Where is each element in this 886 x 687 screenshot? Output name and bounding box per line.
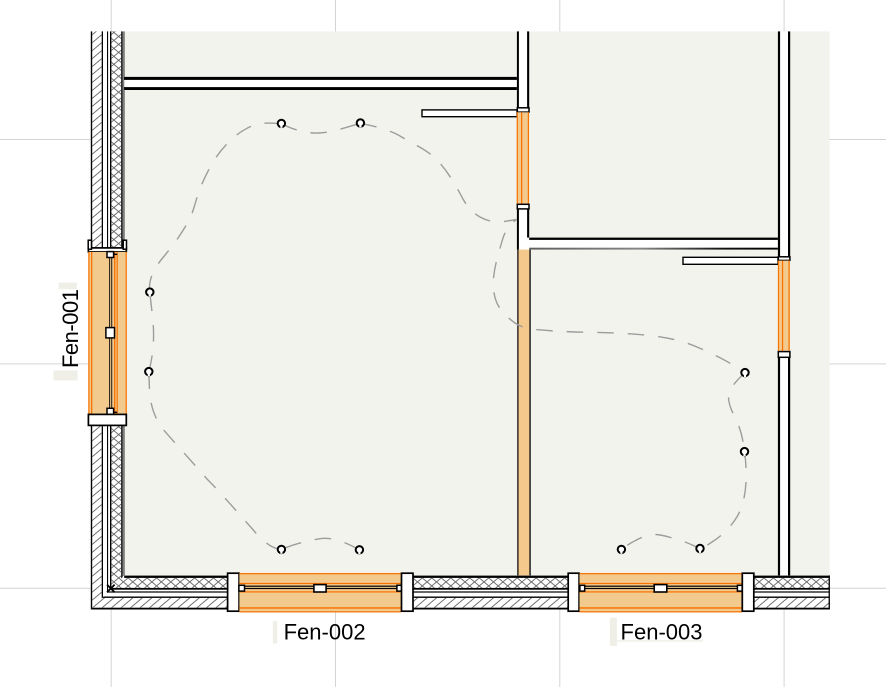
svg-text:Fen-002: Fen-002: [284, 620, 366, 645]
svg-text:Fen-003: Fen-003: [621, 620, 703, 645]
svg-text:Fen-001: Fen-001: [58, 289, 83, 368]
